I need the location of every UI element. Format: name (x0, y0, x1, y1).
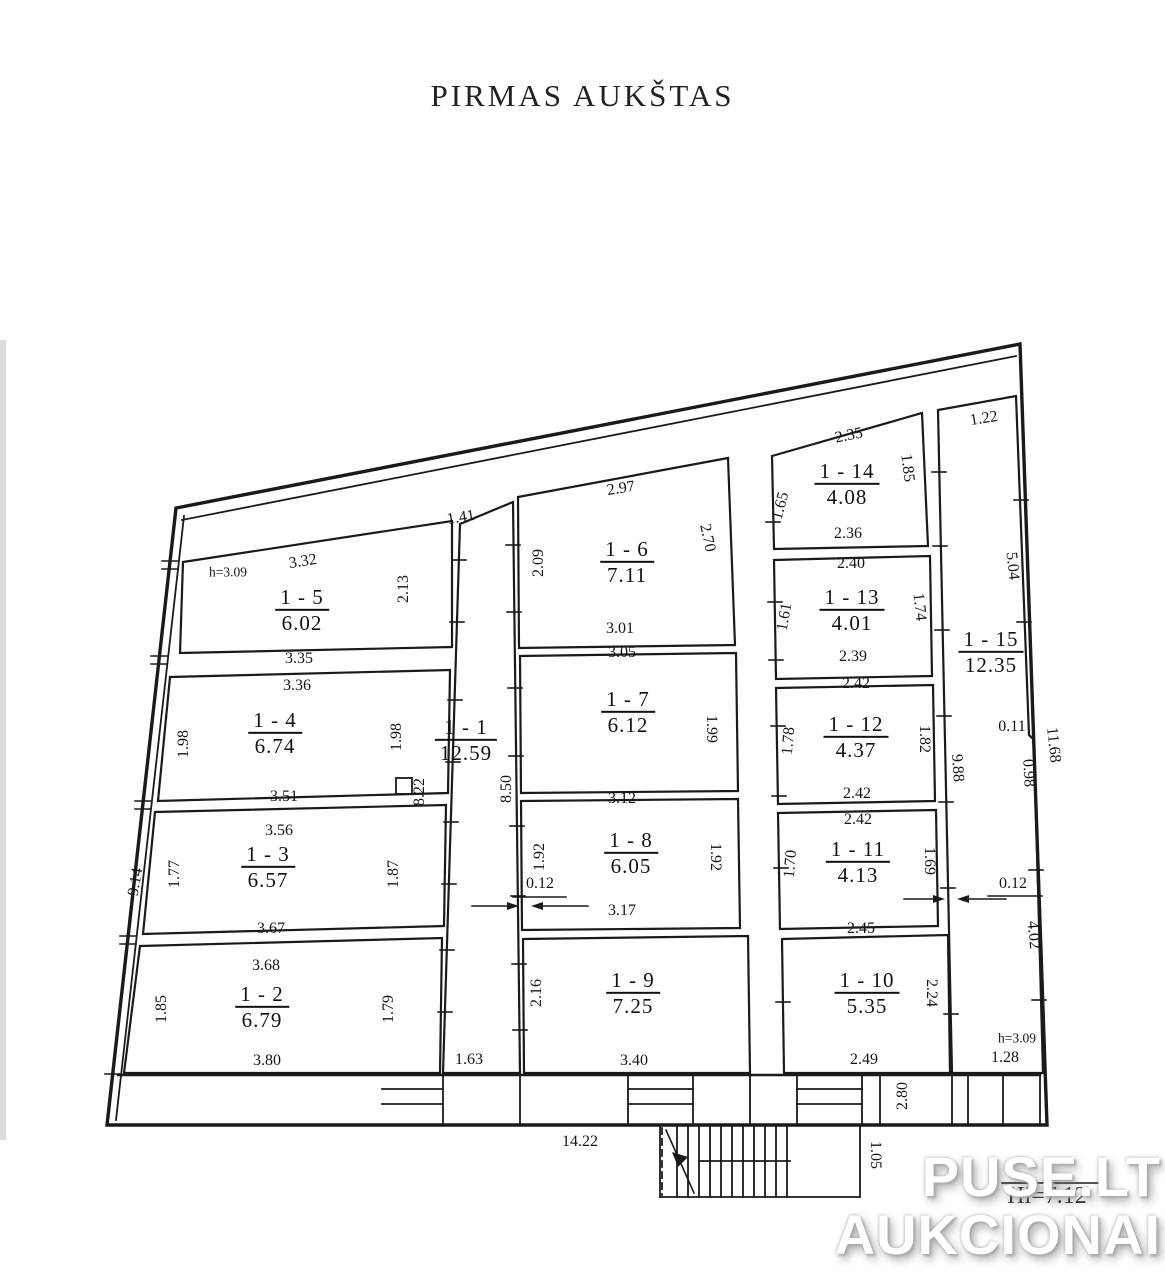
dim-label: 1.77 (167, 860, 183, 888)
dim-label: 2.09 (531, 549, 547, 577)
dim-label: h=3.09 (209, 565, 247, 579)
dim-label: 1.63 (455, 1052, 483, 1068)
dim-label: 3.51 (270, 789, 298, 805)
room-area: 6.12 (601, 711, 655, 737)
dim-label: 1.87 (386, 860, 402, 888)
dim-label: 3.01 (606, 621, 634, 637)
floor-plan-page: PIRMAS AUKŠTAS (0, 0, 1165, 1280)
dim-label: 1.99 (703, 715, 719, 743)
dim-label: 1.85 (897, 453, 916, 483)
dim-label: 0.12 (526, 876, 554, 892)
dim-label: 8.50 (499, 775, 515, 803)
room-id: 1 - 6 (600, 538, 654, 561)
dim-label: 1.74 (910, 592, 929, 622)
dim-label: 0.98 (1019, 759, 1036, 788)
dim-label: 2.39 (839, 649, 867, 665)
dim-label: 2.49 (850, 1052, 878, 1068)
dim-label: 14.22 (562, 1134, 598, 1150)
room-area: 4.01 (820, 609, 885, 635)
dim-label: 3.67 (257, 921, 285, 937)
dim-label: 1.69 (921, 847, 937, 875)
dim-label: 0.12 (999, 876, 1027, 892)
room-id: 1 - 2 (235, 983, 289, 1006)
dim-label: 3.80 (253, 1053, 281, 1069)
room-label-1-14: 1 - 144.08 (815, 460, 880, 508)
dim-label: 2.42 (843, 786, 871, 802)
room-area: 6.74 (248, 732, 302, 758)
room-label-1-11: 1 - 114.13 (826, 838, 890, 886)
room-label-1-12: 1 - 124.37 (824, 713, 889, 761)
room-label-1-4: 1 - 46.74 (248, 709, 302, 757)
room-area: 7.25 (606, 992, 660, 1018)
dim-label: 1.79 (381, 995, 397, 1023)
dim-label: 2.45 (847, 921, 875, 937)
floor-plan-drawing: 1 - 112.591 - 26.791 - 36.571 - 46.741 -… (0, 0, 1165, 1280)
room-id: 1 - 5 (275, 586, 329, 609)
room-id: 1 - 3 (241, 843, 295, 866)
dim-label: 1.78 (780, 726, 798, 755)
dim-label: 11.68 (1043, 727, 1063, 764)
dim-label: 1.92 (707, 843, 723, 871)
room-label-1-9: 1 - 97.25 (606, 969, 660, 1017)
dim-label: 1.98 (389, 723, 405, 751)
dim-label: 8.22 (412, 778, 428, 806)
dim-label: 3.56 (265, 823, 293, 839)
dim-label: h=3.09 (998, 1031, 1036, 1045)
dim-label: 0.11 (998, 719, 1025, 735)
room-id: 1 - 13 (820, 586, 885, 609)
dim-label: 1.92 (532, 843, 548, 871)
room-id: 1 - 8 (604, 829, 658, 852)
watermark: PUSE.LT AUKCIONAI (835, 1148, 1161, 1264)
dim-label: 3.05 (608, 645, 636, 661)
room-id: 1 - 10 (835, 969, 900, 992)
room-area: 6.02 (275, 609, 329, 635)
room-label-1-15: 1 - 1512.35 (959, 628, 1024, 676)
room-area: 4.13 (826, 861, 890, 887)
dim-label: 3.12 (608, 791, 636, 807)
room-id: 1 - 7 (601, 688, 655, 711)
room-area: 7.11 (600, 561, 654, 587)
dim-label: 1.98 (176, 730, 192, 758)
room-area: 4.08 (815, 483, 880, 509)
stair-direction-arrow (672, 1152, 688, 1167)
room-label-1-3: 1 - 36.57 (241, 843, 295, 891)
stairs (660, 1125, 860, 1197)
dim-label: 2.16 (529, 979, 545, 1007)
room-id: 1 - 12 (824, 713, 889, 736)
dim-label: 9.88 (948, 753, 966, 782)
room-id: 1 - 11 (826, 838, 890, 861)
dim-label: 3.36 (283, 678, 311, 694)
room-label-1-7: 1 - 76.12 (601, 688, 655, 736)
dim-label: 1.85 (154, 995, 170, 1023)
room-id: 1 - 1 (435, 716, 497, 739)
room-label-1-8: 1 - 86.05 (604, 829, 658, 877)
room-label-1-13: 1 - 134.01 (820, 586, 885, 634)
room-label-1-10: 1 - 105.35 (835, 969, 900, 1017)
room-area: 12.35 (959, 651, 1024, 677)
room-area: 6.57 (241, 866, 295, 892)
room-label-1-5: 1 - 56.02 (275, 586, 329, 634)
dim-label: 3.68 (252, 958, 280, 974)
dim-label: 2.24 (923, 979, 939, 1007)
dim-label: 2.80 (895, 1082, 911, 1110)
room-label-1-6: 1 - 67.11 (600, 538, 654, 586)
dim-label: 2.42 (844, 812, 872, 828)
room-area: 4.37 (824, 736, 889, 762)
room-label-1-2: 1 - 26.79 (235, 983, 289, 1031)
dim-label: 1.82 (916, 725, 932, 753)
dim-label: 1.70 (782, 849, 800, 878)
room-id: 1 - 4 (248, 709, 302, 732)
room-id: 1 - 15 (959, 628, 1024, 651)
room-area: 12.59 (435, 739, 497, 765)
dim-label: 2.40 (837, 556, 865, 572)
room-area: 6.05 (604, 852, 658, 878)
dim-label: 2.13 (396, 575, 412, 603)
watermark-line2: AUKCIONAI (835, 1206, 1161, 1264)
room-area: 6.79 (235, 1006, 289, 1032)
room-id: 1 - 14 (815, 460, 880, 483)
watermark-line1: PUSE.LT (835, 1148, 1161, 1206)
dim-label: 4.02 (1024, 920, 1042, 949)
room-area: 5.35 (835, 992, 900, 1018)
dim-label: 1.28 (991, 1050, 1019, 1066)
dim-label: 3.35 (285, 651, 313, 667)
room-id: 1 - 9 (606, 969, 660, 992)
dim-label: 2.42 (842, 676, 870, 692)
dim-label: 3.17 (608, 903, 636, 919)
dim-label: 5.04 (1003, 551, 1022, 581)
dim-label: 3.40 (620, 1053, 648, 1069)
room-label-1-1: 1 - 112.59 (435, 716, 497, 764)
dim-label: 2.36 (834, 526, 862, 542)
